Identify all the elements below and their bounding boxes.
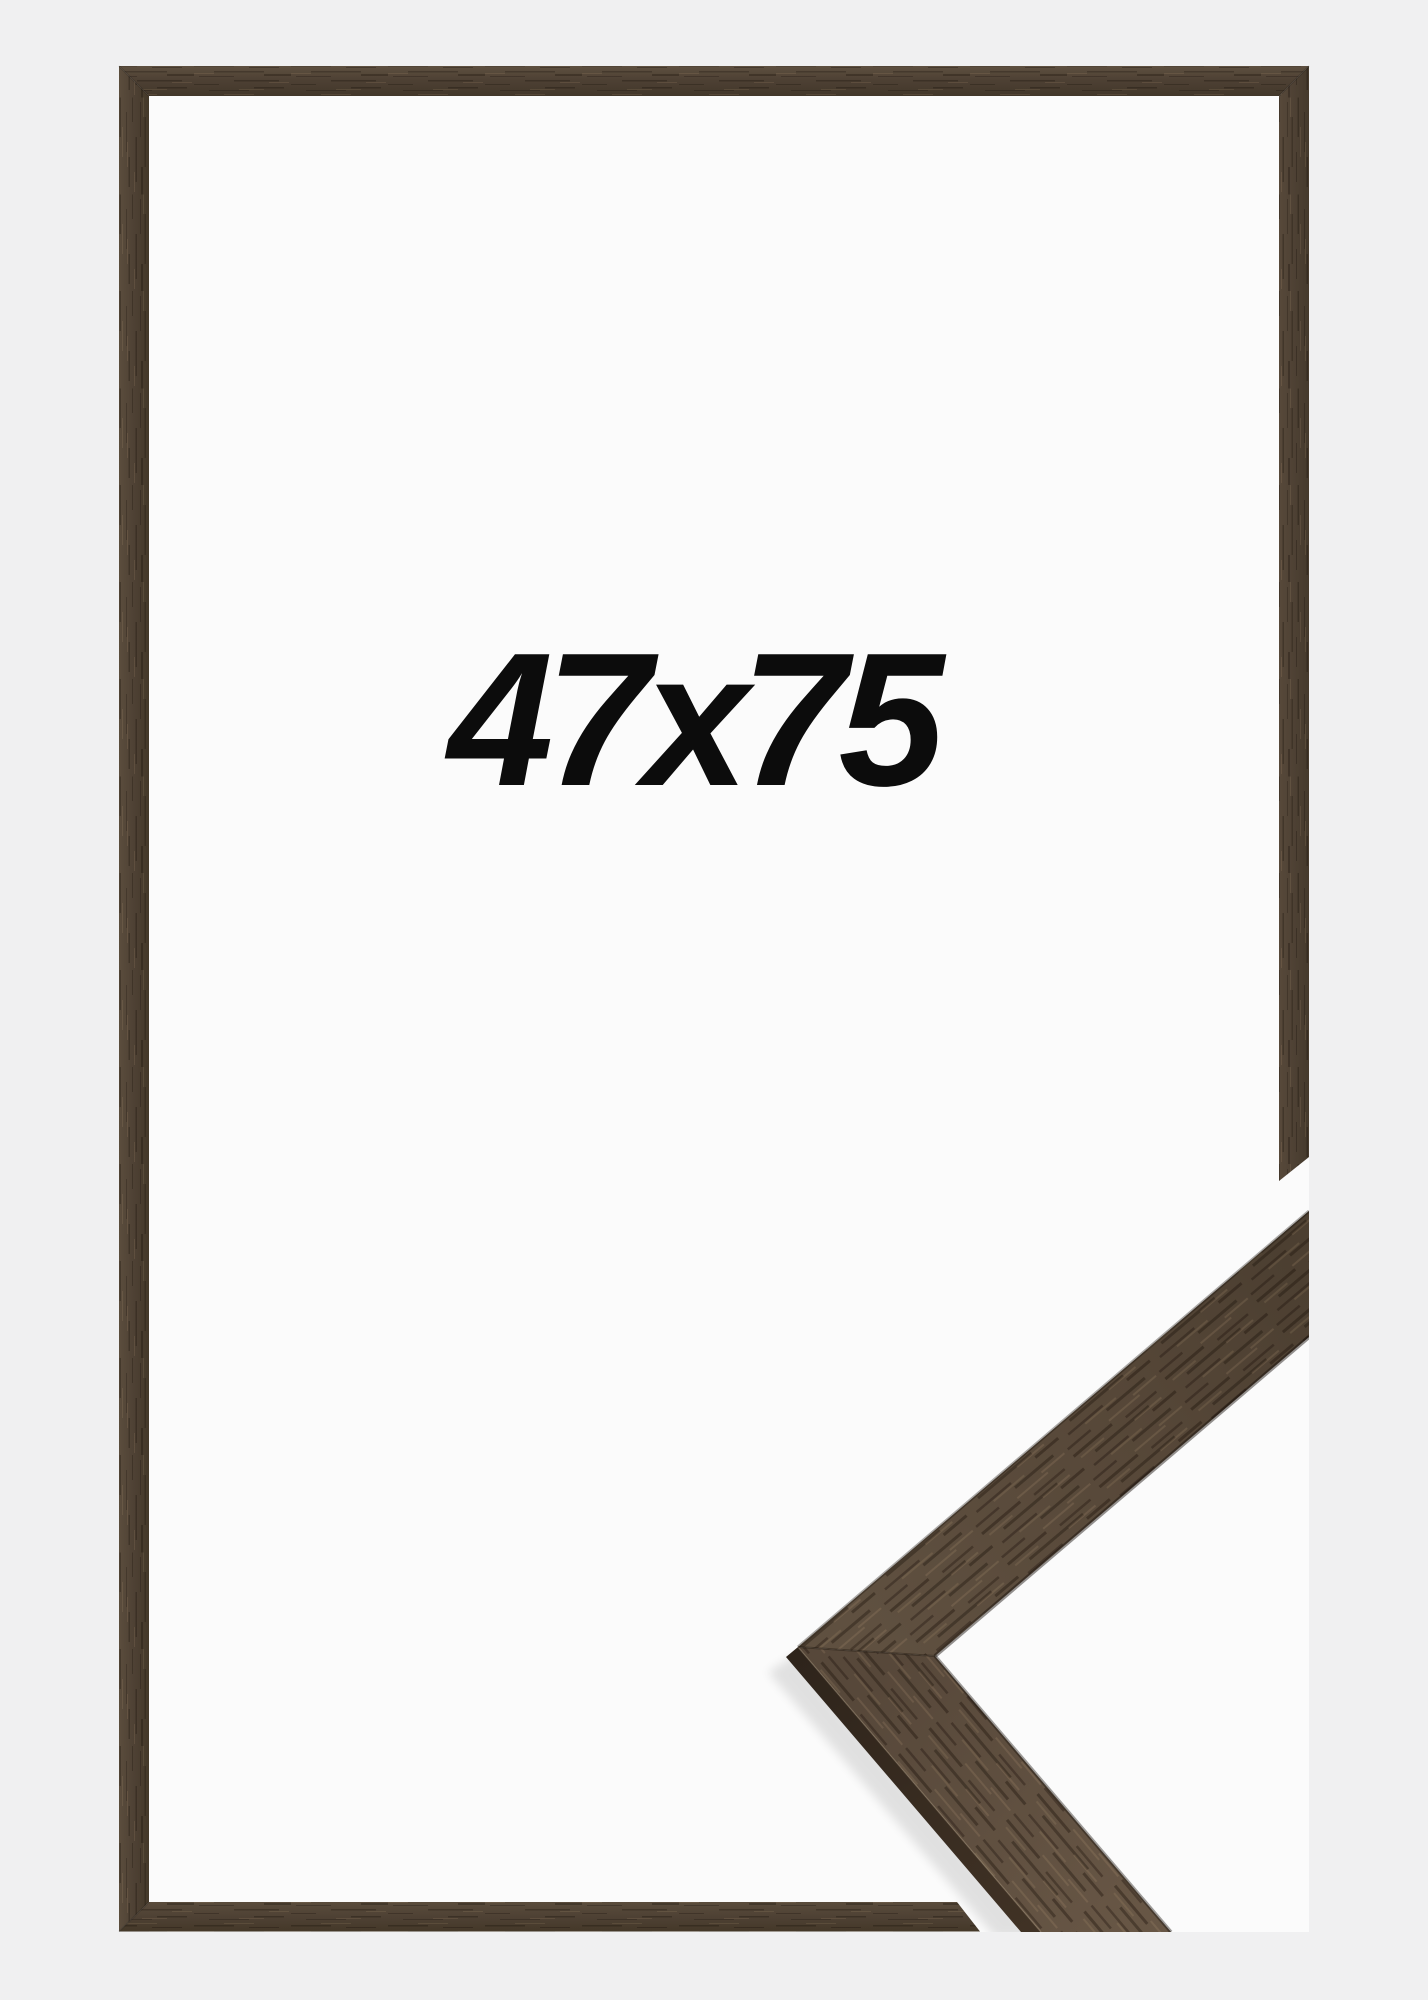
frame-outline-right-bar (1279, 66, 1309, 1181)
frame-outline-top-bar (119, 66, 1309, 96)
frame-inner-area (149, 96, 1309, 1932)
frame-illustration-canvas: 47x75 (0, 0, 1428, 2000)
frame-outline-left-bar (119, 66, 149, 1932)
frame-product-image: 47x75 (0, 0, 1428, 2000)
size-label: 47x75 (444, 614, 947, 826)
frame-outline-bottom-bar (119, 1902, 980, 1932)
